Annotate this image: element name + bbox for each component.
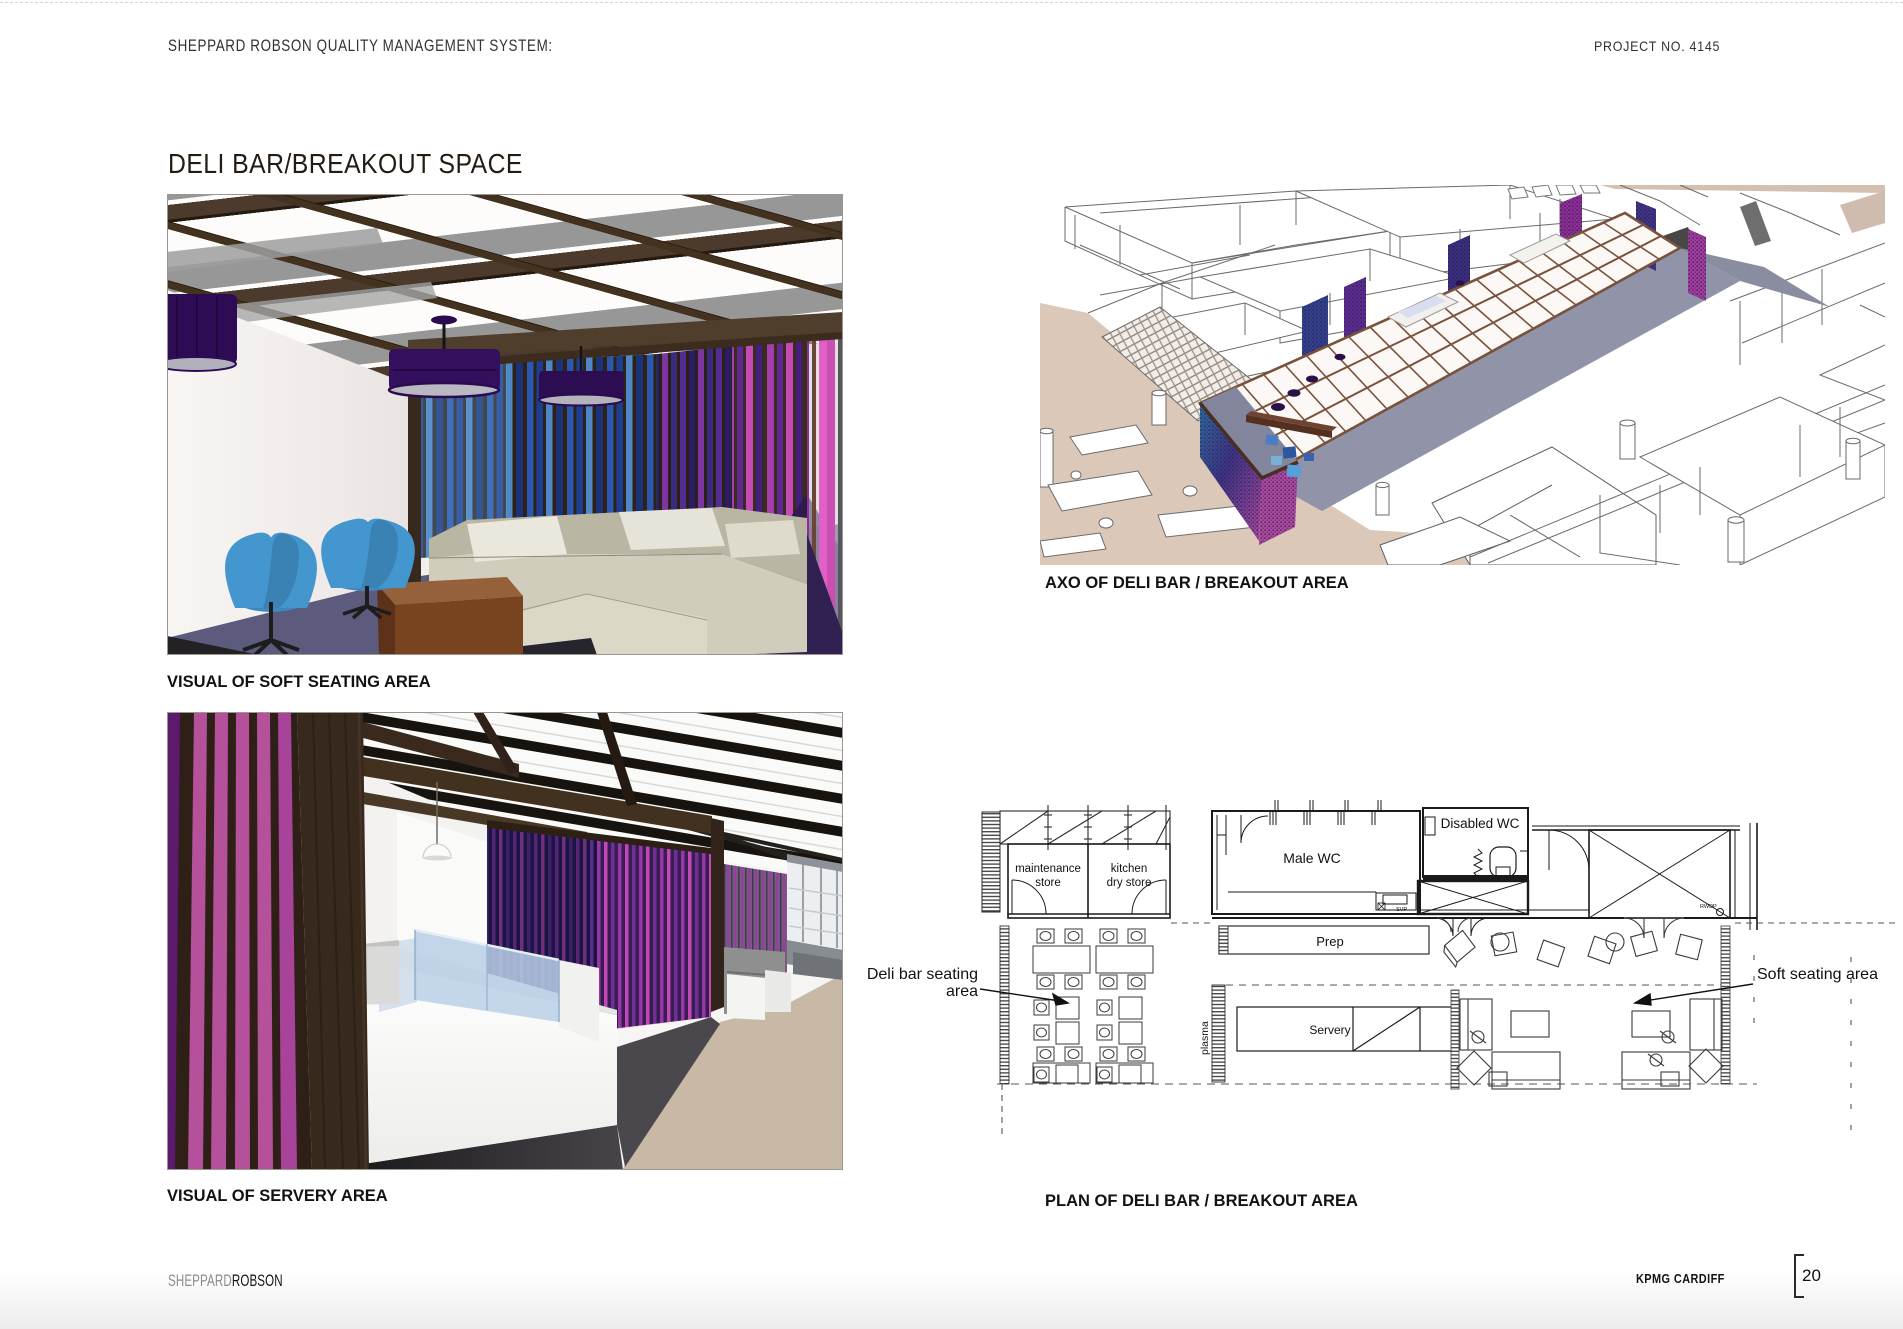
svg-text:Servery: Servery xyxy=(1309,1023,1350,1037)
svg-text:maintenance: maintenance xyxy=(1015,863,1081,875)
svg-text:plasma: plasma xyxy=(1199,1021,1211,1055)
svg-text:SVP: SVP xyxy=(1396,907,1407,913)
svg-text:RWDP: RWDP xyxy=(1700,904,1717,910)
svg-text:dry store: dry store xyxy=(1107,877,1152,889)
svg-text:Disabled WC: Disabled WC xyxy=(1441,816,1520,831)
svg-text:Prep: Prep xyxy=(1316,934,1343,949)
svg-text:kitchen: kitchen xyxy=(1111,863,1147,875)
svg-text:Male WC: Male WC xyxy=(1283,850,1341,866)
svg-text:store: store xyxy=(1035,877,1061,889)
